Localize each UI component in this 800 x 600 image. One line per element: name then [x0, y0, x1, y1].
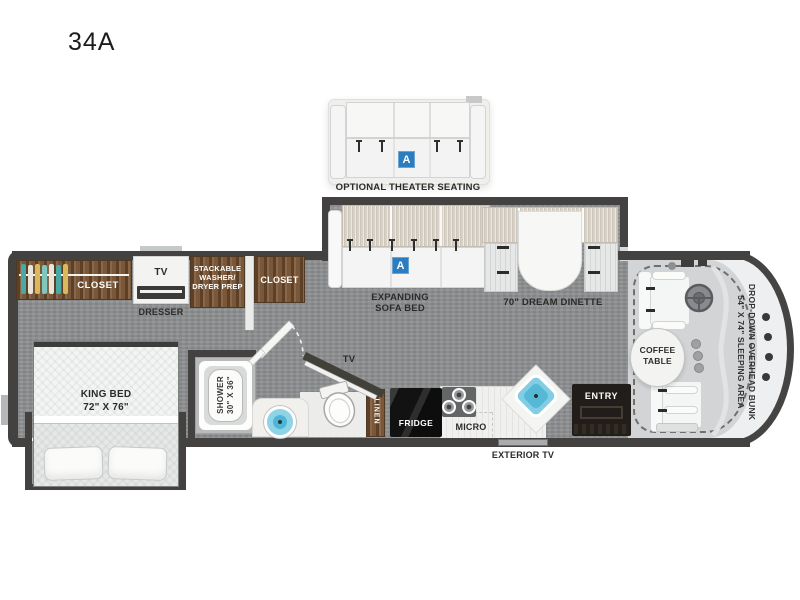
- steering-wheel-icon: [686, 285, 712, 311]
- windshield-dots: [762, 313, 773, 381]
- detail-layer: [0, 0, 800, 600]
- dashboard-curve: [713, 267, 726, 435]
- console-cupholders-icon: [692, 340, 704, 373]
- floorplan-34a: 34A A OPTIONAL THEATER SEATING: [0, 0, 800, 600]
- burners-icon: [443, 389, 475, 413]
- bath-tv-label: TV: [336, 354, 362, 365]
- door-swing-arc: [292, 326, 303, 356]
